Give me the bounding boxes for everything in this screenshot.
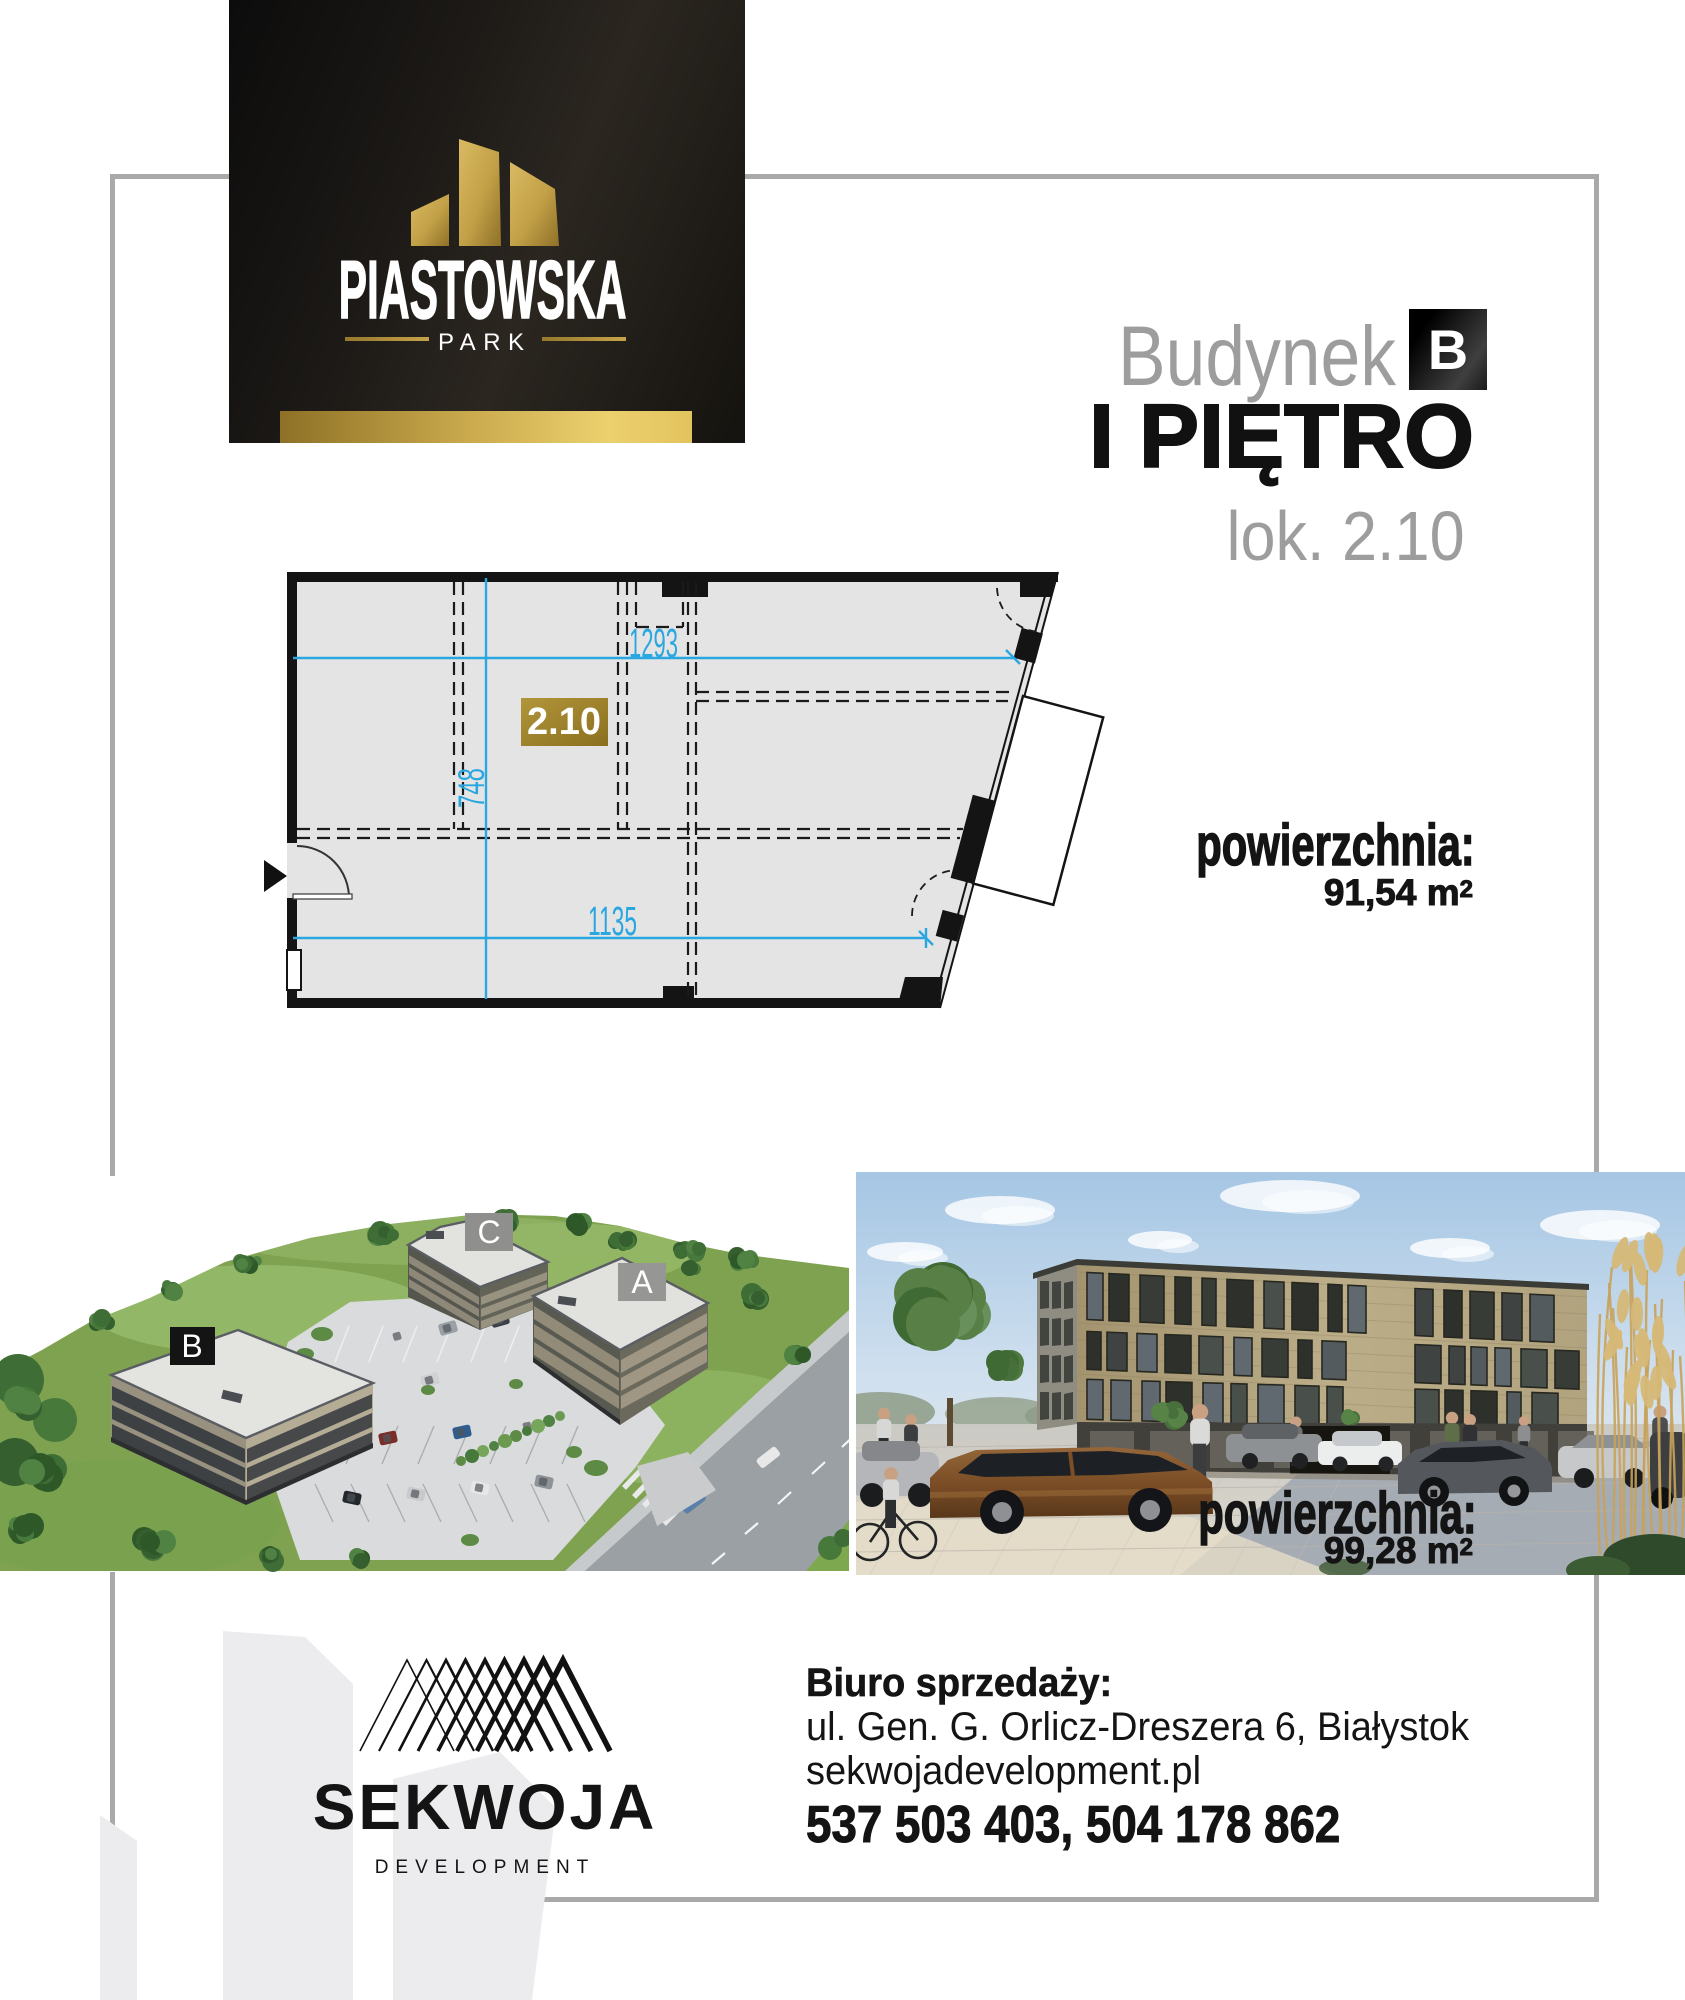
svg-text:748: 748 — [451, 768, 492, 808]
svg-text:A: A — [631, 1264, 653, 1300]
svg-text:B: B — [181, 1328, 202, 1364]
svg-text:C: C — [477, 1214, 500, 1250]
svg-text:1135: 1135 — [588, 898, 637, 944]
svg-text:2.10: 2.10 — [527, 701, 601, 743]
svg-text:1293: 1293 — [629, 620, 678, 666]
